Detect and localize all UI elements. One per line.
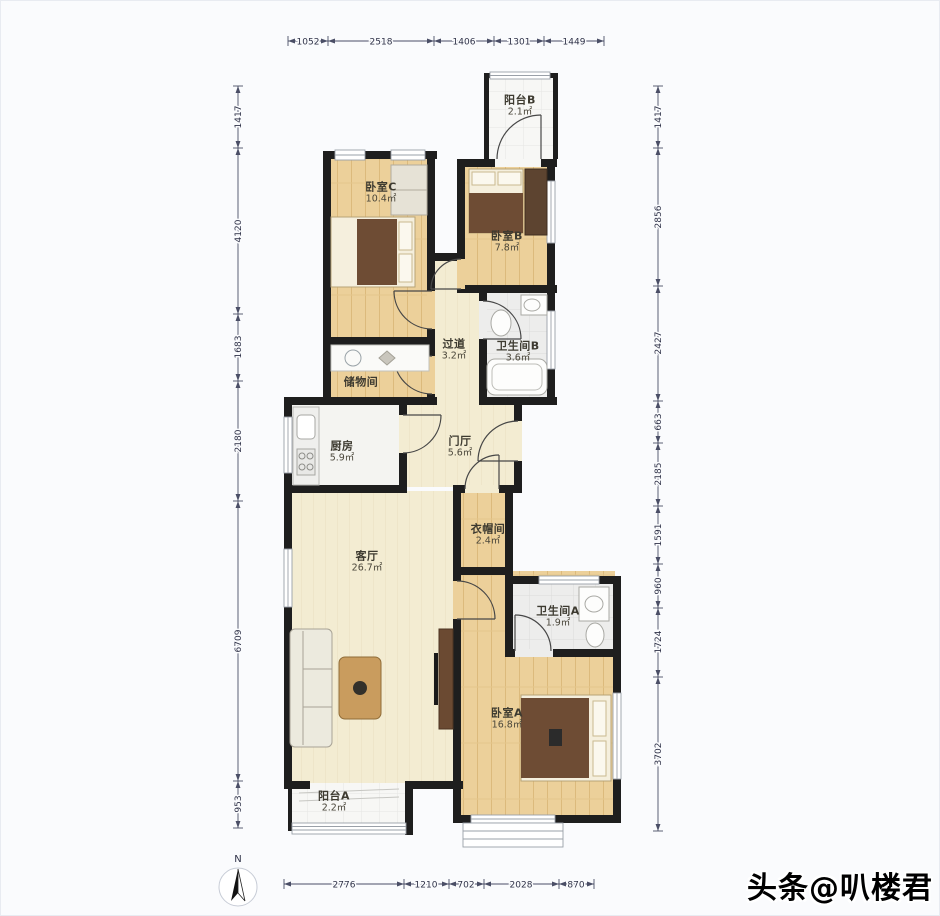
dimension-left: 1417 4120 1683 2180 6709 953 [233, 86, 244, 828]
floor-plan-svg: 1052 2518 1406 1301 1449 1417 4120 1683 … [1, 1, 940, 916]
window-bedroom-a-south [463, 815, 563, 847]
storage-cabinet [331, 345, 429, 371]
bedroom-a-bed [521, 695, 611, 781]
bedroom-b-wardrobe [525, 169, 547, 235]
bedroom-b-bed [469, 169, 523, 233]
window-kitchen [284, 417, 292, 473]
toilet-icon [586, 623, 604, 647]
dim-right-6: 960 [654, 577, 664, 594]
watermark: 头条@叭楼君 [747, 863, 933, 907]
dim-right-7: 1724 [654, 630, 664, 653]
coffee-table [339, 657, 381, 719]
basin-icon [579, 587, 609, 621]
room-cloakroom-floor [459, 491, 505, 571]
dim-bottom-2: 702 [457, 881, 474, 891]
dim-top-4: 1449 [563, 38, 586, 48]
dim-left-4: 6709 [234, 629, 244, 652]
dim-top-0: 1052 [297, 38, 320, 48]
window-living [284, 549, 292, 607]
dim-left-0: 1417 [234, 106, 244, 129]
dim-left-3: 2180 [234, 429, 244, 452]
dim-right-3: 663 [654, 413, 664, 430]
dim-bottom-3: 2028 [510, 881, 533, 891]
sink-icon [297, 415, 315, 439]
dim-right-4: 2185 [654, 463, 664, 486]
dimension-bottom: 2776 1210 702 2028 870 [284, 879, 594, 891]
window-bedroom-c-1 [335, 150, 365, 160]
kitchen-counter [293, 407, 319, 485]
window-bedroom-a-east [613, 693, 621, 779]
window-balcony-b [490, 72, 550, 79]
window-balcony-a [292, 823, 406, 834]
bedroom-c-bed [331, 217, 415, 287]
window-bedroom-c-2 [391, 150, 425, 160]
basin-icon [521, 295, 547, 315]
dim-left-5: 953 [234, 795, 244, 812]
dim-bottom-0: 2776 [333, 881, 356, 891]
toilet-icon [491, 310, 511, 336]
stove-icon [297, 449, 315, 475]
window-bathroom-a [539, 576, 599, 584]
dim-left-2: 1683 [234, 336, 244, 359]
sofa [290, 629, 332, 747]
floor-plan-page: 1052 2518 1406 1301 1449 1417 4120 1683 … [0, 0, 940, 916]
dim-top-2: 1406 [453, 38, 476, 48]
dimension-right: 1417 2856 2427 663 2185 1591 960 1724 37… [653, 86, 664, 831]
dim-right-1: 2856 [654, 205, 664, 228]
dim-right-5: 1591 [654, 524, 664, 547]
compass-north-label: N [234, 854, 241, 865]
dim-bottom-4: 870 [567, 881, 584, 891]
dim-right-2: 2427 [654, 332, 664, 355]
dimension-top: 1052 2518 1406 1301 1449 [288, 36, 604, 48]
dim-right-8: 3702 [654, 743, 664, 766]
dim-right-0: 1417 [654, 106, 664, 129]
bedroom-c-closet [391, 165, 427, 215]
window-bathroom-b [547, 311, 555, 369]
tv-icon [434, 653, 438, 705]
dim-top-1: 2518 [370, 38, 393, 48]
dim-left-1: 4120 [234, 219, 244, 242]
dim-bottom-1: 1210 [415, 881, 438, 891]
window-bedroom-b [547, 181, 555, 243]
compass-icon: N [219, 854, 257, 906]
dim-top-3: 1301 [508, 38, 531, 48]
